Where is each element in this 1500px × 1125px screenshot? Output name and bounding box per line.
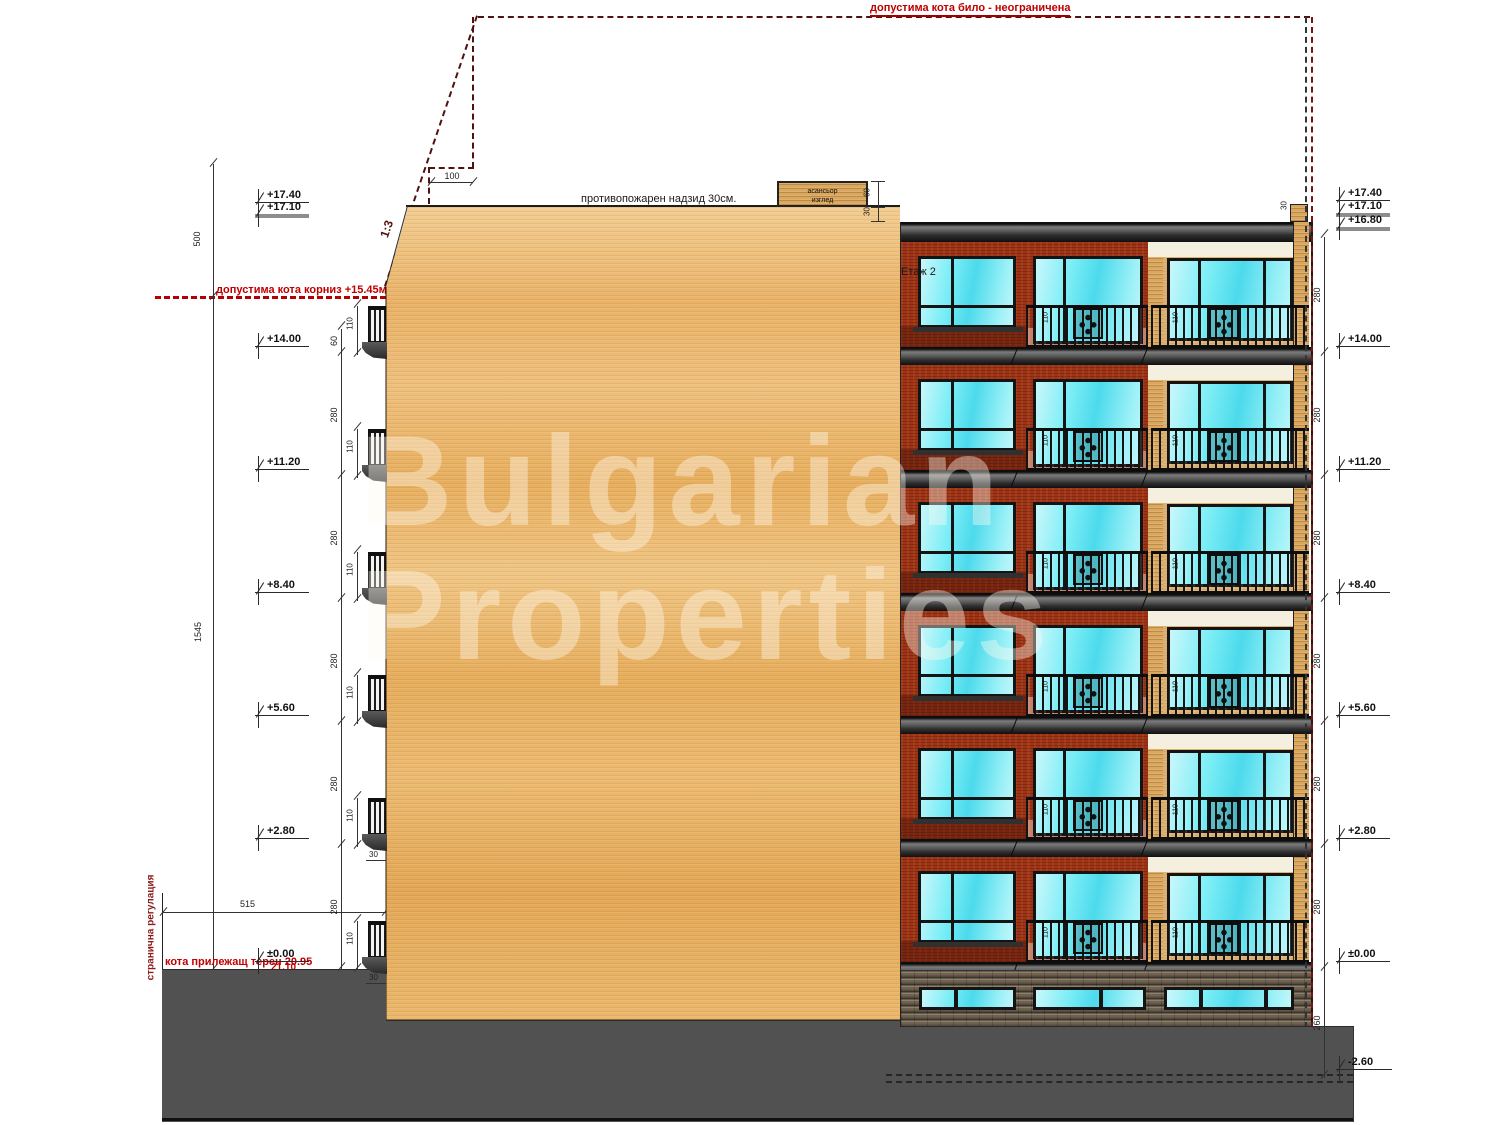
level-marker-line xyxy=(1336,346,1390,347)
level-marker-line xyxy=(255,346,309,347)
window-sill xyxy=(913,696,1023,701)
balcony-height-dim: 110 xyxy=(346,802,355,830)
chain-dim-label: 280 xyxy=(329,397,339,433)
railing-ornament xyxy=(1073,800,1103,831)
railing-ornament xyxy=(1209,677,1239,708)
level-marker-line xyxy=(1336,227,1390,231)
basement-window xyxy=(919,987,1016,1010)
left-balcony-railing xyxy=(368,675,386,711)
railing-ornament xyxy=(1073,308,1103,339)
level-marker-line xyxy=(255,838,309,839)
balcony-depth-dim: 30 xyxy=(369,973,378,982)
window-transom xyxy=(921,797,1013,800)
railing-ornament xyxy=(1073,554,1103,585)
railing-height-dim: 110 xyxy=(1043,304,1050,332)
foundation-marker-extension xyxy=(1336,1069,1392,1070)
railing-ornament xyxy=(1209,431,1239,462)
level-marker-label: +14.00 xyxy=(267,333,301,345)
window-mullion xyxy=(951,628,954,694)
railing-height-dim: 110 xyxy=(1173,919,1180,947)
window-mullion xyxy=(951,751,954,817)
parapet-small-dim: 30 xyxy=(1280,194,1289,218)
cornice-limit-label: допустима кота корниз +15.45м. xyxy=(216,284,390,296)
level-marker-label: +5.60 xyxy=(267,702,295,714)
level-marker-label: +17.10 xyxy=(1348,200,1382,212)
chain-dim-label: 280 xyxy=(1312,889,1322,925)
setback-dashed-vertical-upper xyxy=(472,17,474,168)
window-mullion xyxy=(1264,990,1268,1007)
apartment-window xyxy=(918,502,1016,574)
railing-height-dim: 110 xyxy=(1173,304,1180,332)
balcony-height-dim: 110 xyxy=(346,556,355,584)
chain-dim-label: 280 xyxy=(329,520,339,556)
floor-slab-band xyxy=(901,347,1311,365)
apartment-window xyxy=(918,625,1016,697)
dim-chain-line xyxy=(341,329,342,970)
level-marker-label: ±0.00 xyxy=(1348,948,1375,960)
side-regulation-label: странична регулация xyxy=(146,873,157,983)
window-sill xyxy=(913,450,1023,455)
level-marker-label: +5.60 xyxy=(1348,702,1376,714)
window-transom xyxy=(921,551,1013,554)
window-lintel xyxy=(1148,488,1293,503)
chain-dim-label: 60 xyxy=(329,323,339,359)
left-balcony-railing xyxy=(368,798,386,834)
window-mullion xyxy=(951,505,954,571)
left-balcony-railing xyxy=(368,552,386,588)
level-marker-label: +8.40 xyxy=(1348,579,1376,591)
left-balcony-corbel xyxy=(362,588,387,605)
balcony-height-dim: 110 xyxy=(346,925,355,953)
level-marker-line xyxy=(1336,469,1390,470)
ground-bottom-line xyxy=(162,1118,1353,1121)
chain-dim-label: 280 xyxy=(1312,766,1322,802)
left-balcony-railing xyxy=(368,306,386,342)
left-balcony-railing xyxy=(368,429,386,465)
left-balcony-corbel xyxy=(362,342,387,359)
firewall-left-edge xyxy=(385,287,387,1021)
chain-dim-label: 280 xyxy=(329,766,339,802)
level-marker-label: +16.80 xyxy=(1348,214,1382,226)
balcony-depth-dim-line xyxy=(366,860,386,861)
chain-dim-label: 280 xyxy=(1312,643,1322,679)
level-marker-line xyxy=(255,592,309,593)
elevator-label-line2: изглед xyxy=(779,196,866,205)
railing-ornament xyxy=(1073,677,1103,708)
railing-height-dim: 110 xyxy=(1173,427,1180,455)
railing-ornament xyxy=(1209,923,1239,954)
fire-step-dim: 30 xyxy=(863,201,872,223)
window-transom xyxy=(921,428,1013,431)
level-marker-line xyxy=(1336,592,1390,593)
ridge-limit-label: допустима кота било - неограничена xyxy=(870,2,1070,17)
balcony-dim-line xyxy=(357,306,358,355)
balcony-height-dim: 110 xyxy=(346,433,355,461)
railing-ornament xyxy=(1209,554,1239,585)
dim-tick xyxy=(871,221,885,222)
floor-slab-band xyxy=(901,470,1311,488)
window-lintel xyxy=(1148,611,1293,626)
balcony-height-dim: 110 xyxy=(346,310,355,338)
window-sill xyxy=(913,819,1023,824)
side-offset-dim-line xyxy=(162,912,386,913)
chain-dim-label: 280 xyxy=(1312,397,1322,433)
apartment-window xyxy=(918,748,1016,820)
right-regulation-dashed-black xyxy=(1305,17,1307,1028)
balcony-dim-line xyxy=(357,798,358,847)
railing-ornament xyxy=(1209,308,1239,339)
railing-height-dim: 110 xyxy=(1173,550,1180,578)
setback-dashed-horizontal xyxy=(429,167,474,169)
apartment-window xyxy=(918,379,1016,451)
slope-ratio-label: 1:3 xyxy=(377,219,396,240)
level-marker-line xyxy=(1336,838,1390,839)
level-marker-label: +2.80 xyxy=(1348,825,1376,837)
floor-slab-band xyxy=(901,962,1311,970)
railing-ornament xyxy=(1209,800,1239,831)
foundation-dashed-line-2 xyxy=(886,1081,1353,1083)
left-balcony-railing xyxy=(368,921,386,957)
window-lintel xyxy=(1148,365,1293,380)
window-transom xyxy=(921,920,1013,923)
floor-slab-band xyxy=(901,839,1311,857)
dim-chain-line xyxy=(1324,237,1325,1078)
window-mullion xyxy=(1099,990,1103,1007)
foundation-dashed-line-1 xyxy=(886,1074,1353,1076)
window-transom xyxy=(921,305,1013,308)
window-lintel xyxy=(1148,734,1293,749)
window-sill xyxy=(913,327,1023,332)
window-transom xyxy=(921,674,1013,677)
setback-dim-line-upper xyxy=(430,182,473,183)
floor-slab-band xyxy=(901,716,1311,734)
window-mullion xyxy=(951,382,954,448)
level-marker-label: ±0.00 xyxy=(267,948,294,960)
railing-height-dim: 110 xyxy=(1173,673,1180,701)
elevator-box: асансьор изглед xyxy=(777,181,868,207)
left-balcony-corbel xyxy=(362,711,387,728)
balcony-depth-dim-line xyxy=(366,983,386,984)
balcony-dim-line xyxy=(357,552,358,601)
elevator-label-line1: асансьор xyxy=(779,187,866,196)
railing-ornament xyxy=(1073,923,1103,954)
balcony-depth-dim: 30 xyxy=(369,850,378,859)
railing-height-dim: 110 xyxy=(1043,796,1050,824)
window-mullion xyxy=(951,874,954,940)
facade-parapet-band xyxy=(901,222,1311,242)
railing-height-dim: 110 xyxy=(1043,919,1050,947)
dim-tick xyxy=(871,207,885,208)
window-mullion xyxy=(1199,990,1203,1007)
level-marker-label: +17.40 xyxy=(267,189,301,201)
chain-dim-label: 260 xyxy=(1312,1005,1322,1041)
window-sill xyxy=(913,942,1023,947)
railing-height-dim: 110 xyxy=(1043,550,1050,578)
window-sill xyxy=(913,573,1023,578)
chain-dim-label: 280 xyxy=(329,643,339,679)
balcony-dim-line xyxy=(357,675,358,724)
elevator-dim-line xyxy=(878,181,879,222)
dim-tick xyxy=(871,181,885,182)
window-lintel xyxy=(1148,242,1293,257)
elevation-drawing-canvas: допустима кота било - неограничена 1:3 1… xyxy=(0,0,1500,1125)
level-marker-line xyxy=(255,715,309,716)
level-marker-label: +8.40 xyxy=(267,579,295,591)
balcony-height-dim: 110 xyxy=(346,679,355,707)
balcony-dim-line xyxy=(357,429,358,478)
left-total-dim-line xyxy=(213,164,214,970)
fire-parapet-label: противопожарен надзид 30см. xyxy=(581,193,736,205)
window-mullion xyxy=(954,990,958,1007)
level-marker-label: +2.80 xyxy=(267,825,295,837)
chain-dim-label: 280 xyxy=(329,889,339,925)
level-marker-line xyxy=(1336,715,1390,716)
level-marker-line xyxy=(1336,961,1390,962)
building-facade: 110110110110110110110110110110110110 xyxy=(900,222,1313,1027)
railing-height-dim: 110 xyxy=(1043,427,1050,455)
level-marker-line xyxy=(255,469,309,470)
left-balcony-corbel xyxy=(362,834,387,851)
left-balcony-corbel xyxy=(362,465,387,482)
basement-window xyxy=(1033,987,1146,1010)
firewall-blank-wall xyxy=(386,207,900,1021)
apartment-window xyxy=(918,871,1016,943)
balcony-dim-line xyxy=(357,921,358,970)
railing-height-dim: 110 xyxy=(1043,673,1050,701)
level-marker-label: +14.00 xyxy=(1348,333,1382,345)
level-marker-label: -2.60 xyxy=(1348,1056,1373,1068)
building-total-dim: 1545 xyxy=(193,610,203,654)
chain-dim-label: 280 xyxy=(1312,277,1322,313)
level-marker-line xyxy=(255,961,309,962)
ground-middle xyxy=(386,1020,900,1122)
railing-height-dim: 110 xyxy=(1173,796,1180,824)
ground-left xyxy=(162,969,386,1122)
basement-window xyxy=(1164,987,1294,1010)
floor-slab-band xyxy=(901,593,1311,611)
chain-dim-label: 280 xyxy=(1312,520,1322,556)
window-mullion xyxy=(951,259,954,325)
railing-ornament xyxy=(1073,431,1103,462)
upper-total-dim: 500 xyxy=(192,219,202,259)
level-marker-label: +11.20 xyxy=(1348,456,1381,468)
window-lintel xyxy=(1148,857,1293,872)
level-marker-line xyxy=(255,214,309,218)
setback-dim-upper: 100 xyxy=(433,171,471,181)
side-offset-dim: 515 xyxy=(240,899,255,909)
level-marker-label: +11.20 xyxy=(267,456,300,468)
level-marker-label: +17.40 xyxy=(1348,187,1382,199)
level-marker-label: +17.10 xyxy=(267,201,301,213)
floor-tag-label: Етаж 2 xyxy=(901,266,936,278)
